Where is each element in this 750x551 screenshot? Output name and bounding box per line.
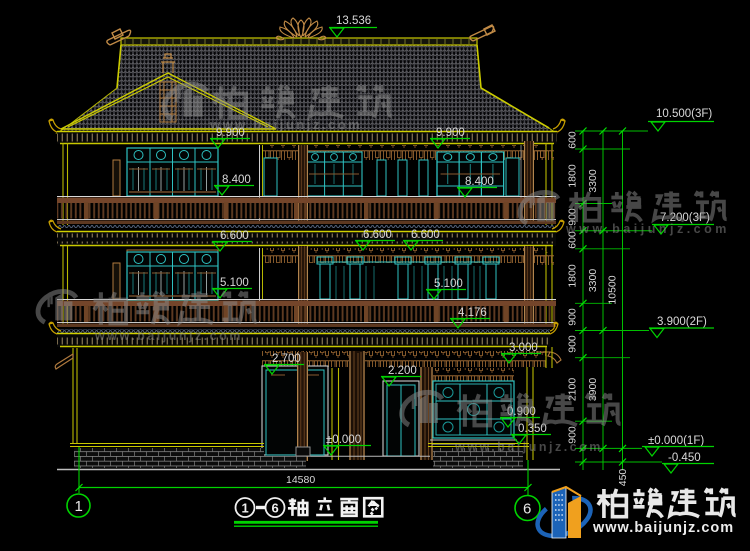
svg-text:450: 450 bbox=[617, 469, 629, 487]
svg-text:1800: 1800 bbox=[567, 264, 579, 288]
svg-text:8.400: 8.400 bbox=[465, 176, 494, 188]
svg-text:1: 1 bbox=[242, 501, 249, 516]
svg-text:13.536: 13.536 bbox=[336, 15, 371, 27]
svg-text:6: 6 bbox=[523, 501, 531, 518]
svg-text:-0.450: -0.450 bbox=[668, 452, 701, 464]
svg-text:14580: 14580 bbox=[286, 474, 315, 486]
svg-text:6.600: 6.600 bbox=[411, 229, 440, 241]
svg-text:www.baijunjz.com: www.baijunjz.com bbox=[592, 520, 734, 536]
svg-text:10.500(3F): 10.500(3F) bbox=[656, 108, 712, 120]
svg-text:900: 900 bbox=[567, 335, 579, 353]
svg-text:600: 600 bbox=[567, 131, 579, 149]
svg-text:3300: 3300 bbox=[587, 269, 599, 293]
svg-text:6: 6 bbox=[272, 501, 279, 516]
svg-text:www.baijunjz.com: www.baijunjz.com bbox=[94, 329, 243, 343]
svg-text:5.100: 5.100 bbox=[220, 277, 249, 289]
svg-text:4.176: 4.176 bbox=[458, 307, 487, 319]
svg-text:1: 1 bbox=[75, 498, 83, 515]
svg-text:2.700: 2.700 bbox=[272, 353, 301, 365]
svg-text:2.200: 2.200 bbox=[388, 365, 417, 377]
svg-text:10500: 10500 bbox=[607, 275, 619, 304]
svg-text:www.baijunjz.com: www.baijunjz.com bbox=[454, 440, 603, 454]
svg-text:www.baijunjz.com: www.baijunjz.com bbox=[209, 117, 362, 132]
svg-text:8.400: 8.400 bbox=[222, 174, 251, 186]
svg-text:900: 900 bbox=[567, 308, 579, 326]
svg-text:1800: 1800 bbox=[567, 164, 579, 188]
svg-text:5.100: 5.100 bbox=[434, 278, 463, 290]
svg-text:www.baijunjz.com: www.baijunjz.com bbox=[565, 222, 730, 236]
svg-text:9.900: 9.900 bbox=[436, 127, 465, 139]
svg-text:±0.000: ±0.000 bbox=[326, 434, 361, 446]
svg-text:6.600: 6.600 bbox=[220, 230, 249, 242]
svg-text:±0.000(1F): ±0.000(1F) bbox=[648, 435, 704, 447]
svg-text:3.000: 3.000 bbox=[509, 342, 538, 354]
svg-text:3.900(2F): 3.900(2F) bbox=[657, 316, 707, 328]
svg-text:3300: 3300 bbox=[587, 169, 599, 193]
svg-text:6.600: 6.600 bbox=[363, 229, 392, 241]
